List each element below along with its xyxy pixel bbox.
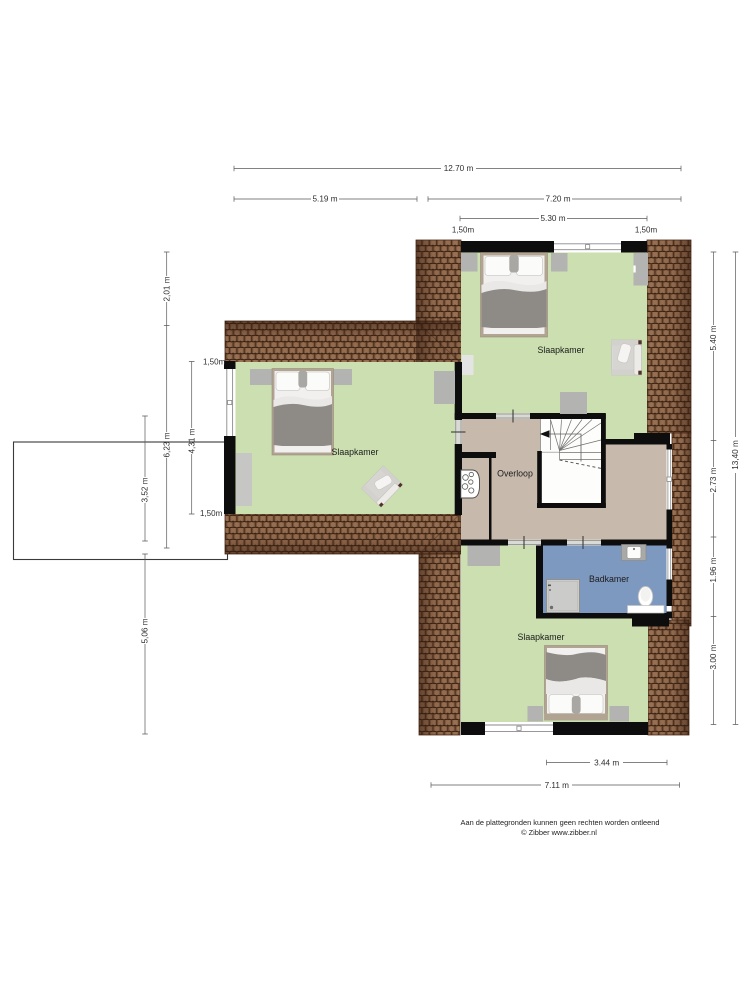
svg-text:2.73 m: 2.73 m bbox=[709, 467, 718, 492]
svg-text:1,50m: 1,50m bbox=[452, 225, 475, 234]
svg-text:Overloop: Overloop bbox=[497, 469, 533, 479]
svg-text:Slaapkamer: Slaapkamer bbox=[538, 345, 585, 355]
svg-text:5.19 m: 5.19 m bbox=[312, 195, 337, 204]
svg-text:4,31 m: 4,31 m bbox=[187, 428, 196, 453]
svg-text:7.20 m: 7.20 m bbox=[545, 195, 570, 204]
svg-text:5.30 m: 5.30 m bbox=[540, 214, 565, 223]
svg-text:Slaapkamer: Slaapkamer bbox=[518, 632, 565, 642]
svg-text:6,23 m: 6,23 m bbox=[162, 432, 171, 457]
svg-text:3,52 m: 3,52 m bbox=[141, 477, 150, 502]
svg-text:1,50m: 1,50m bbox=[635, 225, 658, 234]
svg-text:1,50m: 1,50m bbox=[203, 358, 226, 367]
svg-text:Slaapkamer: Slaapkamer bbox=[332, 447, 379, 457]
svg-text:© Zibber www.zibber.nl: © Zibber www.zibber.nl bbox=[521, 828, 597, 837]
svg-text:1,50m: 1,50m bbox=[200, 509, 223, 518]
svg-text:5,06 m: 5,06 m bbox=[141, 618, 150, 643]
svg-text:3.00 m: 3.00 m bbox=[709, 644, 718, 669]
svg-text:2,01 m: 2,01 m bbox=[162, 276, 171, 301]
svg-text:Badkamer: Badkamer bbox=[589, 574, 629, 584]
svg-text:12.70 m: 12.70 m bbox=[444, 164, 474, 173]
svg-text:7.11 m: 7.11 m bbox=[545, 781, 570, 790]
svg-text:1.96 m: 1.96 m bbox=[709, 557, 718, 582]
svg-text:3.44 m: 3.44 m bbox=[594, 758, 619, 767]
svg-text:5.40 m: 5.40 m bbox=[709, 325, 718, 350]
svg-text:Aan de plattegronden kunnen ge: Aan de plattegronden kunnen geen rechten… bbox=[461, 818, 660, 827]
svg-text:13,40 m: 13,40 m bbox=[731, 440, 740, 470]
